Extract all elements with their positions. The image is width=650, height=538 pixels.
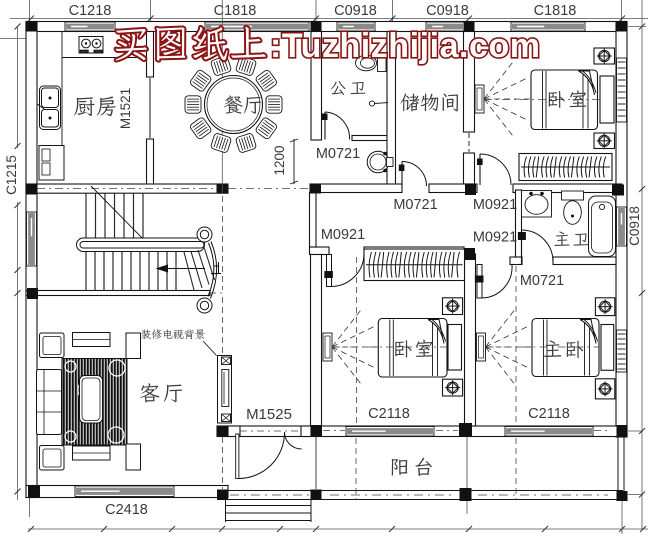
svg-text:C2118: C2118 — [528, 406, 570, 422]
svg-text:C0918: C0918 — [627, 206, 642, 246]
svg-text:M0721: M0721 — [316, 146, 360, 162]
svg-text:M0721: M0721 — [520, 273, 564, 289]
svg-text:C2418: C2418 — [105, 502, 148, 518]
svg-text:M0921: M0921 — [473, 230, 517, 246]
svg-text::Tuzhizhijia.com: :Tuzhizhijia.com — [270, 27, 540, 65]
svg-text:C1818: C1818 — [214, 3, 257, 19]
svg-text:M0721: M0721 — [393, 197, 437, 213]
svg-text:C1218: C1218 — [69, 3, 112, 19]
svg-text:M1521: M1521 — [118, 88, 133, 129]
svg-text:M1525: M1525 — [246, 406, 292, 423]
svg-text:C1818: C1818 — [534, 3, 577, 19]
svg-text:1200: 1200 — [272, 145, 287, 175]
svg-text:C0918: C0918 — [426, 3, 469, 19]
svg-text:C0918: C0918 — [334, 3, 377, 19]
svg-text:C1215: C1215 — [4, 155, 19, 195]
svg-text:C2118: C2118 — [368, 406, 410, 422]
svg-text:M0921: M0921 — [321, 227, 365, 243]
svg-text:M0921: M0921 — [473, 197, 517, 213]
